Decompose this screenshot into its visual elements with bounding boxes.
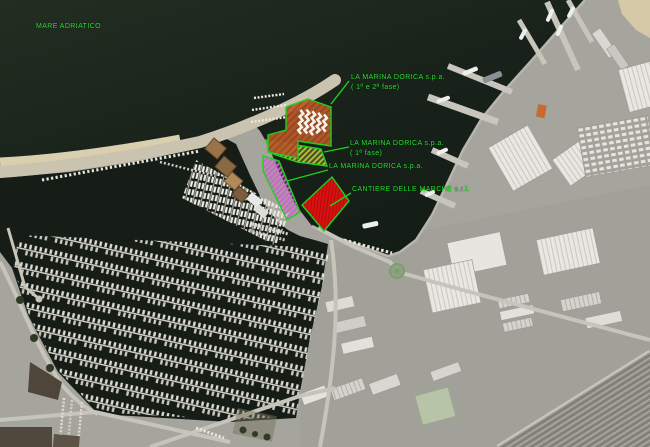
label-line: LA MARINA DORICA s.p.a. — [329, 163, 423, 170]
label-mare-adriatico: MARE ADRIATICO — [36, 22, 101, 32]
label-cantiere-delle-marche: CANTIERE DELLE MARCHE s.r.l. — [352, 185, 470, 195]
label-subline: ( 1ª e 2ª fase) — [351, 83, 445, 93]
aerial-map — [0, 0, 650, 447]
site-plan: MARE ADRIATICO LA MARINA DORICA s.p.a. (… — [0, 0, 650, 447]
label-subline: ( 1ª fase) — [350, 149, 444, 159]
inner-mole-head — [36, 296, 43, 303]
roundabout — [390, 264, 404, 278]
label-line: CANTIERE DELLE MARCHE s.r.l. — [352, 186, 470, 193]
label-marina-dorica-fase12: LA MARINA DORICA s.p.a. ( 1ª e 2ª fase) — [351, 73, 445, 93]
label-line: LA MARINA DORICA s.p.a. — [351, 74, 445, 81]
label-marina-dorica: LA MARINA DORICA s.p.a. — [329, 162, 423, 172]
label-line: LA MARINA DORICA s.p.a. — [350, 140, 444, 147]
label-marina-dorica-fase1: LA MARINA DORICA s.p.a. ( 1ª fase) — [350, 139, 444, 159]
